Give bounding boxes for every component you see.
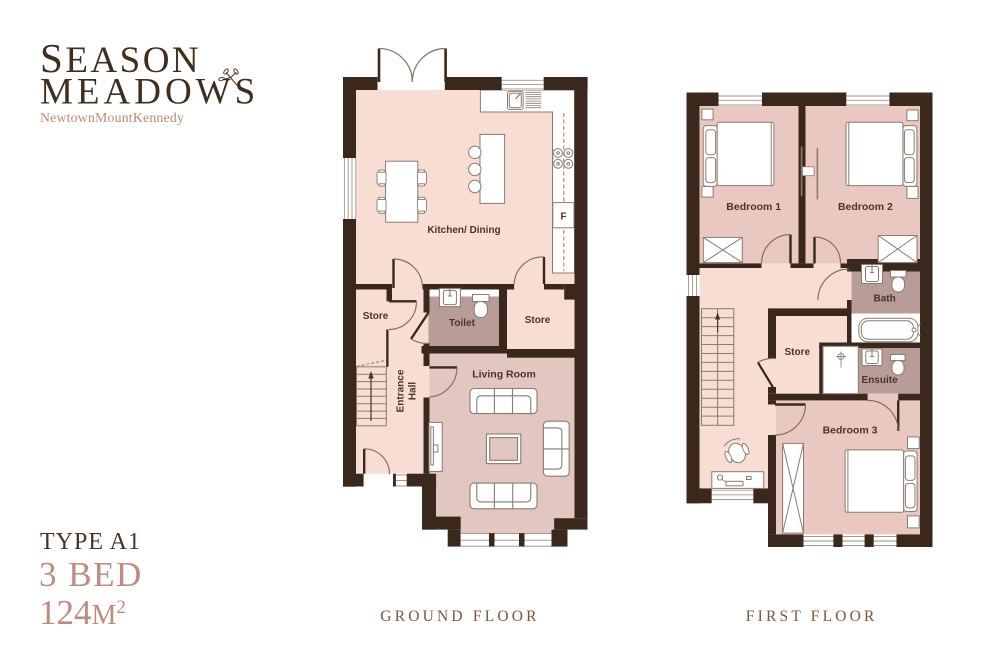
svg-text:Toilet: Toilet: [449, 318, 476, 329]
svg-text:Bedroom 3: Bedroom 3: [823, 425, 878, 437]
svg-text:Entrance: Entrance: [396, 369, 407, 412]
svg-text:MEADOWS: MEADOWS: [40, 72, 259, 113]
svg-text:F: F: [560, 212, 566, 223]
svg-text:Living Room: Living Room: [472, 369, 536, 381]
svg-text:Store: Store: [785, 347, 811, 358]
svg-text:3 BED: 3 BED: [39, 555, 143, 594]
svg-text:FIRST FLOOR: FIRST FLOOR: [746, 608, 878, 625]
svg-text:GROUND FLOOR: GROUND FLOOR: [380, 608, 539, 625]
svg-text:Bath: Bath: [873, 294, 895, 305]
svg-text:Ensuite: Ensuite: [862, 375, 899, 386]
svg-text:Store: Store: [363, 311, 389, 322]
svg-text:NewtownMountKennedy: NewtownMountKennedy: [40, 110, 184, 125]
svg-text:Bedroom 1: Bedroom 1: [726, 201, 781, 213]
svg-text:Hall: Hall: [408, 382, 419, 401]
svg-text:Kitchen/ Dining: Kitchen/ Dining: [427, 225, 500, 236]
svg-text:TYPE A1: TYPE A1: [40, 529, 141, 555]
svg-text:Store: Store: [525, 315, 551, 326]
svg-text:Bedroom 2: Bedroom 2: [838, 201, 893, 213]
